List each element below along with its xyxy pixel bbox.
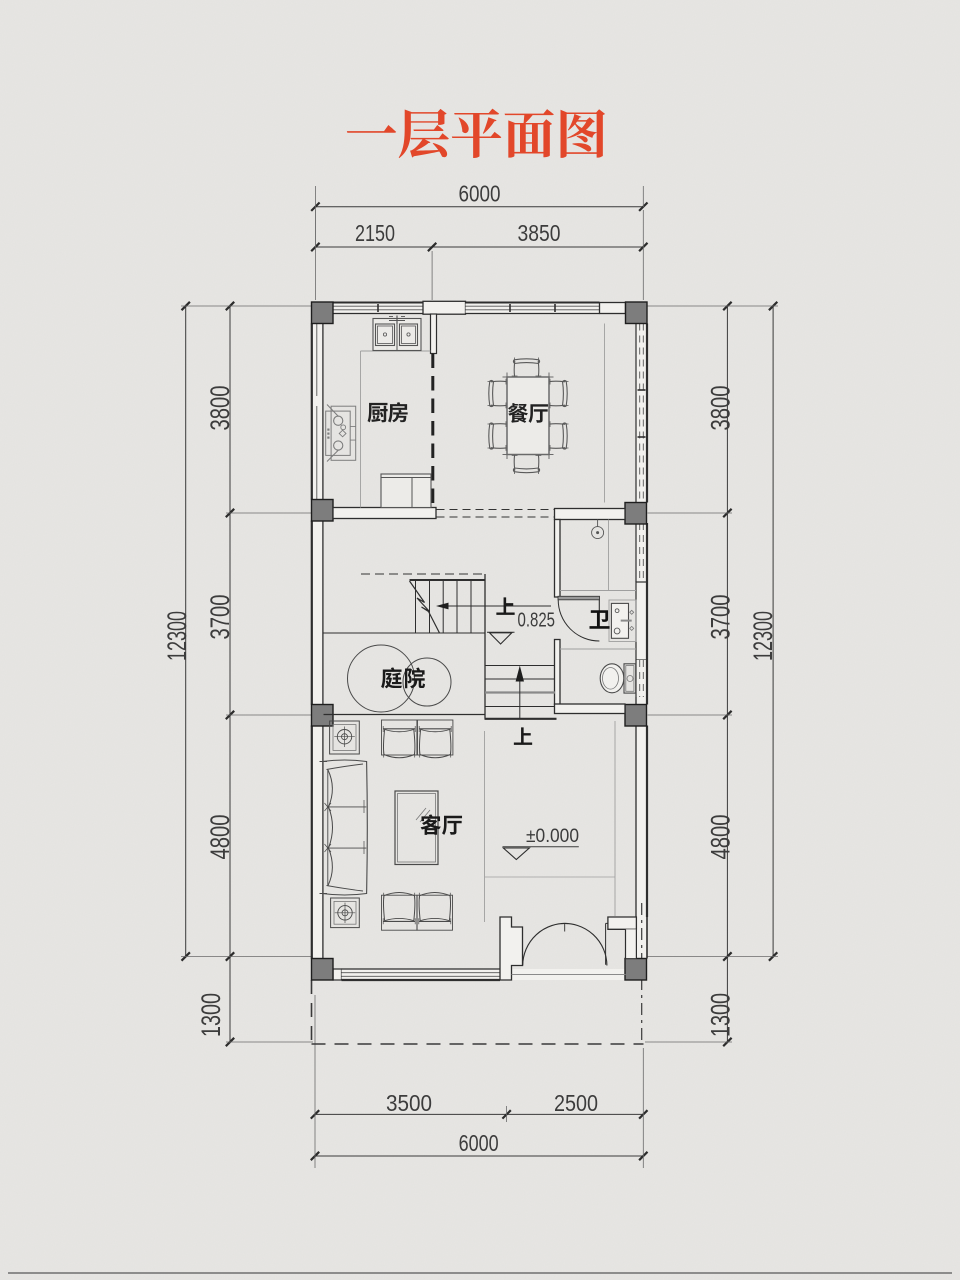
svg-text:0.825: 0.825 [518, 609, 556, 632]
svg-text:6000: 6000 [459, 1130, 499, 1156]
svg-text:12300: 12300 [748, 611, 778, 661]
svg-text:12300: 12300 [162, 611, 192, 661]
svg-text:3800: 3800 [706, 386, 736, 431]
svg-text:3700: 3700 [205, 595, 235, 640]
svg-text:6000: 6000 [459, 181, 501, 207]
svg-text:3850: 3850 [518, 220, 561, 246]
svg-text:2500: 2500 [554, 1090, 598, 1116]
svg-text:4800: 4800 [205, 815, 235, 860]
svg-text:4800: 4800 [706, 815, 736, 860]
svg-text:3500: 3500 [386, 1090, 432, 1116]
svg-text:1300: 1300 [196, 993, 226, 1037]
svg-text:3800: 3800 [205, 386, 235, 431]
svg-text:±0.000: ±0.000 [526, 825, 579, 847]
svg-text:2150: 2150 [355, 220, 395, 246]
svg-text:3700: 3700 [706, 595, 736, 640]
svg-text:1300: 1300 [706, 993, 736, 1037]
